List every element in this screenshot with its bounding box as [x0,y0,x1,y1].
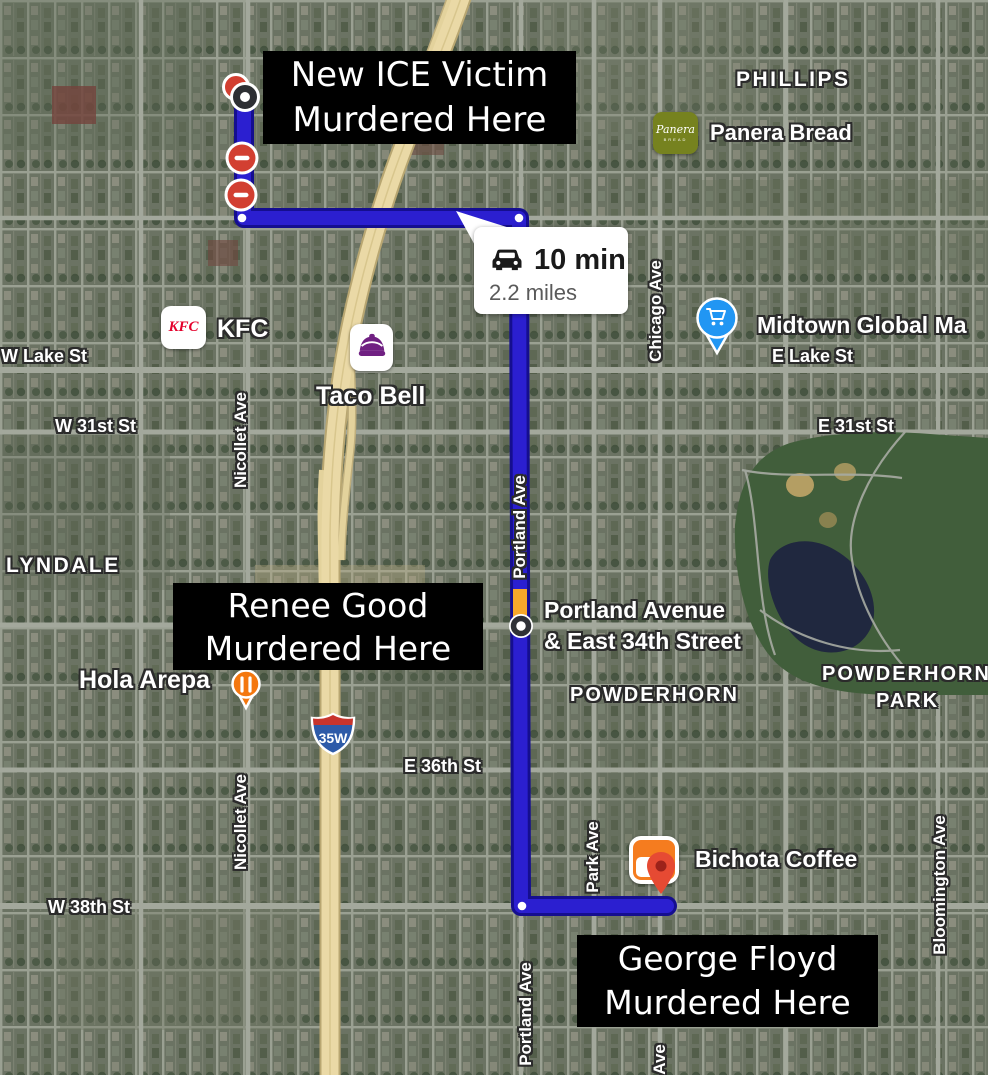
street-w-lake: W Lake St [1,346,87,367]
panera-logo-subtext: BREAD [664,137,688,142]
road-closed-icon[interactable] [225,179,258,212]
neighborhood-powderhorn: POWDERHORN [570,684,739,707]
route-start-marker[interactable] [230,82,260,112]
shield-text: 35W [319,730,349,746]
street-nicollet-lower: Nicollet Ave [231,774,251,870]
route-corner-dot [515,214,524,223]
route-corner-dot [238,214,247,223]
kfc-logo-text: KFC [168,319,198,336]
waypoint-label: Portland Avenue & East 34th Street [544,597,741,655]
overlay-box-george-floyd: George Floyd Murdered Here [577,935,878,1027]
street-e-36th: E 36th St [404,756,481,777]
map-screenshot: KFC Panera BREAD 35W PHILLIPS LYNDALE PO… [0,0,988,1075]
powderhorn-park-area [735,432,988,695]
street-w-31st: W 31st St [55,416,136,437]
street-e-lake: E Lake St [772,346,853,367]
panera-logo-text: Panera [656,124,695,135]
neighborhood-powderhorn-park-line2: PARK [876,690,939,713]
waypoint-label-line1: Portland Avenue [544,597,741,624]
overlay-box-ice-line2: Murdered Here [263,98,576,143]
waypoint-marker[interactable] [509,614,533,638]
poi-label-hola-arepa[interactable]: Hola Arepa [79,666,210,695]
overlay-box-renee-line1: Renee Good [173,584,483,627]
route-distance: 2.2 miles [489,280,577,306]
neighborhood-powderhorn-park-line1: POWDERHORN [822,663,988,686]
street-bloomington: Bloomington Ave [930,815,950,954]
street-nicollet-upper: Nicollet Ave [231,392,251,488]
street-chicago-lower: Chicago Ave [650,1044,670,1075]
street-w-38th: W 38th St [48,897,130,918]
poi-label-panera[interactable]: Panera Bread [710,120,852,146]
street-park-ave: Park Ave [583,821,603,893]
map-canvas[interactable] [0,0,988,1075]
street-portland-on-route: Portland Ave [510,475,530,579]
overlay-box-ice-line1: New ICE Victim [263,53,576,98]
street-e-31st: E 31st St [818,416,894,437]
neighborhood-lyndale: LYNDALE [6,554,121,578]
overlay-box-renee-good: Renee Good Murdered Here [173,583,483,670]
overlay-box-george-line1: George Floyd [577,937,878,981]
overlay-box-ice-victim: New ICE Victim Murdered Here [263,51,576,144]
interstate-35w-shield: 35W [309,712,357,756]
street-portland-lower: Portland Ave [516,962,536,1066]
route-corner-dot [518,902,527,911]
waypoint-label-line2: & East 34th Street [544,628,741,655]
poi-label-midtown[interactable]: Midtown Global Ma [757,312,967,339]
kfc-icon[interactable]: KFC [161,306,206,349]
taco-bell-glyph [355,331,389,365]
road-closed-icon[interactable] [226,142,259,175]
panera-bread-icon[interactable]: Panera BREAD [653,112,698,154]
destination-pin-icon[interactable] [644,850,678,896]
taco-bell-icon[interactable] [350,324,393,371]
overlay-box-george-line2: Murdered Here [577,981,878,1025]
route-duration: 10 min [534,244,626,277]
poi-label-taco-bell[interactable]: Taco Bell [316,382,425,411]
overlay-box-renee-line2: Murdered Here [173,627,483,670]
car-icon [489,246,525,275]
poi-label-bichota[interactable]: Bichota Coffee [695,846,857,873]
poi-label-kfc[interactable]: KFC [217,315,268,344]
neighborhood-phillips: PHILLIPS [736,68,851,92]
street-chicago-upper: Chicago Ave [646,260,666,362]
route-info-bubble[interactable]: 10 min 2.2 miles [474,227,628,314]
